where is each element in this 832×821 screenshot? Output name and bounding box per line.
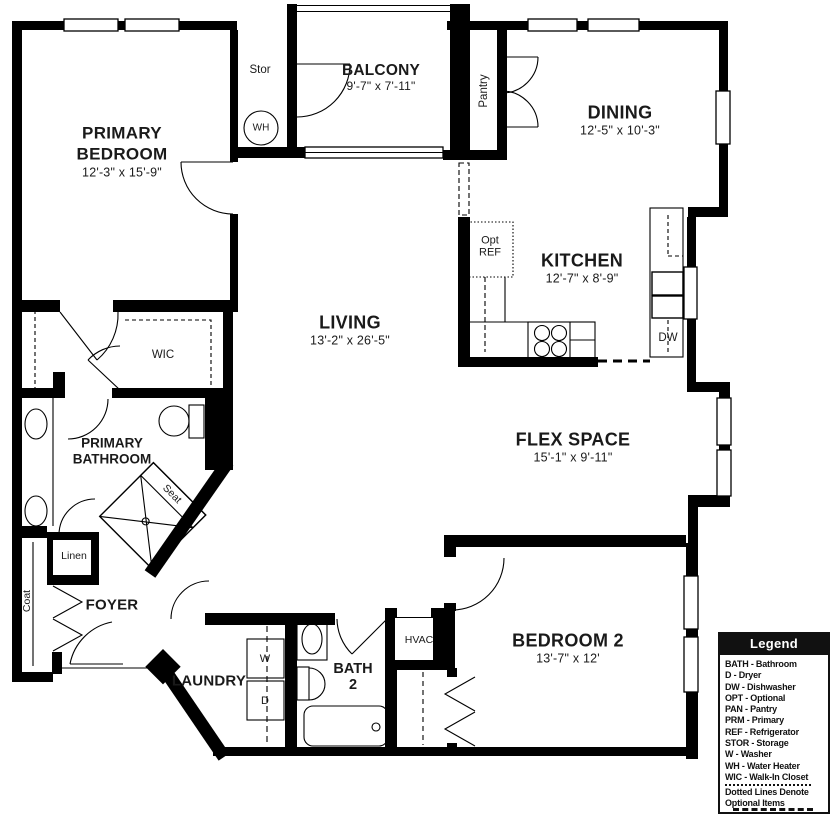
bedroom2-door xyxy=(452,558,504,610)
oven-icon xyxy=(652,296,683,318)
label-primary-bedroom: PRIMARY BEDROOM 12'-3" x 15'-9" xyxy=(77,123,168,182)
sink-icon xyxy=(25,409,47,439)
legend-item: PRM - Primary xyxy=(725,715,828,726)
floor-plan: PRIMARY BEDROOM 12'-3" x 15'-9" BALCONY … xyxy=(0,0,832,821)
label-dishwasher: DW xyxy=(658,332,677,344)
legend-title: Legend xyxy=(718,632,830,655)
label-coat: Coat xyxy=(21,590,33,612)
burner-icon xyxy=(552,326,567,341)
label-flex-space: FLEX SPACE 15'-1" x 9'-11" xyxy=(516,430,631,467)
label-hvac: HVAC xyxy=(405,634,433,646)
label-linen: Linen xyxy=(61,550,87,562)
label-balcony: BALCONY 9'-7" x 7'-11" xyxy=(342,62,420,94)
primary-bedroom-door xyxy=(181,162,233,214)
angled-walls xyxy=(150,462,228,757)
window xyxy=(716,91,730,144)
laundry-door xyxy=(171,581,209,619)
legend-item: REF - Refrigerator xyxy=(725,727,828,738)
optional-wall xyxy=(459,163,469,215)
bath2-door xyxy=(337,619,387,654)
label-bath-2: BATH 2 xyxy=(333,661,372,693)
burner-icon xyxy=(535,342,550,357)
legend: Legend BATH - Bathroom D - Dryer DW - Di… xyxy=(718,632,830,818)
label-water-heater: WH xyxy=(253,123,270,134)
legend-note: Dotted Lines Denote xyxy=(725,787,828,798)
sink-icon xyxy=(297,667,309,700)
label-wic: WIC xyxy=(152,349,174,361)
label-washer: W xyxy=(260,653,270,665)
window xyxy=(528,19,577,31)
bedroom-hall-door xyxy=(60,312,118,360)
label-living: LIVING 13'-2" x 26'-5" xyxy=(310,313,390,350)
legend-item: WIC - Walk-In Closet xyxy=(725,772,828,783)
label-dining: DINING 12'-5" x 10'-3" xyxy=(580,103,660,140)
legend-item: OPT - Optional xyxy=(725,693,828,704)
legend-dash-sample xyxy=(733,808,813,811)
bifold-door-icon xyxy=(53,586,82,618)
window xyxy=(125,19,179,31)
pantry-door-lower xyxy=(502,91,538,127)
toilet-tank-icon xyxy=(189,405,204,438)
window xyxy=(717,450,731,496)
window xyxy=(684,267,697,319)
legend-item: PAN - Pantry xyxy=(725,704,828,715)
label-kitchen: KITCHEN 12'-7" x 8'-9" xyxy=(541,251,623,288)
sink-icon xyxy=(25,496,47,526)
bathroom-hall-door xyxy=(59,499,95,535)
label-storage: Stor xyxy=(249,64,270,76)
pantry-door-upper xyxy=(502,57,538,93)
legend-dotted-divider xyxy=(725,784,811,786)
legend-item: STOR - Storage xyxy=(725,738,828,749)
burner-icon xyxy=(552,342,567,357)
label-primary-bathroom: PRIMARY BATHROOM xyxy=(73,436,152,467)
bifold-door-icon xyxy=(53,619,82,651)
window xyxy=(64,19,118,31)
bathtub-drain-icon xyxy=(372,723,380,731)
hvac-closet-opening xyxy=(397,608,431,617)
bifold-door-icon xyxy=(445,712,475,746)
legend-item: D - Dryer xyxy=(725,670,828,681)
bathroom-door xyxy=(68,399,108,439)
legend-body: BATH - Bathroom D - Dryer DW - Dishwashe… xyxy=(718,655,830,814)
window xyxy=(684,637,698,692)
label-foyer: FOYER xyxy=(86,597,139,614)
toilet-icon xyxy=(159,406,189,436)
label-pantry: Pantry xyxy=(478,74,490,107)
burner-icon xyxy=(535,326,550,341)
legend-item: BATH - Bathroom xyxy=(725,659,828,670)
bifold-door-icon xyxy=(445,677,475,711)
legend-note: Optional Items xyxy=(725,798,828,809)
legend-item: W - Washer xyxy=(725,749,828,760)
label-dryer: D xyxy=(261,695,269,707)
window xyxy=(717,398,731,445)
bathtub-icon xyxy=(304,706,388,746)
label-optional-ref: Opt REF xyxy=(479,236,501,259)
legend-item: WH - Water Heater xyxy=(725,761,828,772)
label-bedroom-2: BEDROOM 2 13'-7" x 12' xyxy=(512,631,624,668)
window xyxy=(684,576,698,629)
label-laundry: LAUNDRY xyxy=(172,673,246,690)
legend-item: DW - Dishwasher xyxy=(725,682,828,693)
window xyxy=(588,19,639,31)
entry-door xyxy=(70,622,123,664)
oven-icon xyxy=(652,272,683,295)
